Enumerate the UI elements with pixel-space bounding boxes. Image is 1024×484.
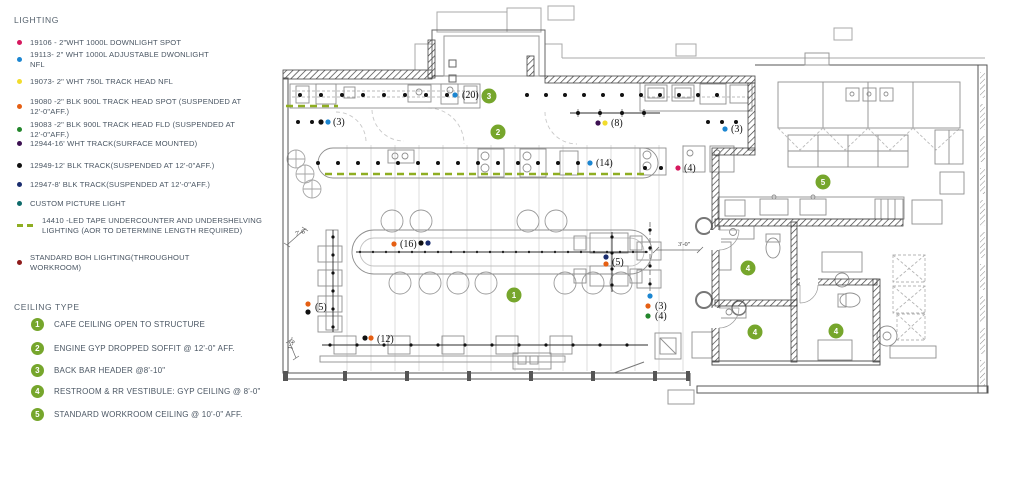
- fixture-callout-dot: [362, 335, 367, 340]
- rr-sink-counter: [720, 226, 754, 239]
- fixture-count-label: (3): [731, 124, 743, 135]
- ceiling-legend-title: CEILING TYPE: [14, 302, 80, 312]
- light-fixture-dot: [541, 251, 543, 253]
- light-fixture-dot: [490, 343, 493, 346]
- ceiling-legend-item: 1CAFE CEILING OPEN TO STRUCTURE: [31, 318, 266, 331]
- fixture-callout-dot: [675, 165, 680, 170]
- restroom-west-wall: [712, 155, 719, 362]
- light-fixture-dot: [403, 93, 407, 97]
- ceiling-legend-label: CAFE CEILING OPEN TO STRUCTURE: [54, 320, 205, 329]
- lighting-legend-label: 19073- 2" WHT 750L TRACK HEAD NFL: [30, 77, 173, 87]
- light-fixture-dot: [544, 93, 548, 97]
- light-dot-marker: [17, 79, 22, 84]
- light-fixture-dot: [720, 120, 724, 124]
- light-fixture-dot: [715, 93, 719, 97]
- lighting-legend-item: 12944-16' WHT TRACK(SURFACE MOUNTED): [17, 139, 265, 149]
- fixture-callout-dot: [305, 301, 310, 306]
- light-fixture-dot: [648, 228, 651, 231]
- light-fixture-dot: [424, 251, 426, 253]
- fixture-count-label: (14): [596, 158, 613, 169]
- desk: [822, 252, 862, 272]
- light-fixture-dot: [632, 251, 634, 253]
- light-fixture-dot: [463, 343, 466, 346]
- light-fixture-dot: [463, 251, 465, 253]
- light-dot-marker: [17, 201, 22, 206]
- light-fixture-dot: [436, 343, 439, 346]
- light-fixture-dot: [563, 93, 567, 97]
- exterior-wall: [283, 70, 432, 79]
- window-wall-segment: [980, 232, 985, 258]
- dashed-reference-arcs: [336, 108, 577, 144]
- fixture-count-label: (8): [611, 118, 623, 129]
- lighting-legend-label: 14410 -LED TAPE UNDERCOUNTER AND UNDERSH…: [42, 216, 262, 235]
- ceiling-tag-number: 4: [753, 328, 758, 337]
- light-fixture-dot: [620, 93, 624, 97]
- lighting-legend-label: 19113- 2" WHT 1000L ADJUSTABLE DWONLIGHT…: [30, 50, 209, 69]
- fixture-callout-dot: [595, 120, 600, 125]
- light-dot-marker: [17, 260, 22, 265]
- lighting-legend-item: CUSTOM PICTURE LIGHT: [17, 199, 265, 209]
- light-fixture-dot: [582, 93, 586, 97]
- light-fixture-dot: [336, 161, 340, 165]
- light-fixture-dot: [502, 251, 504, 253]
- light-fixture-dot: [648, 264, 651, 267]
- window-wall-segment: [980, 296, 985, 322]
- light-fixture-dot: [593, 251, 595, 253]
- fixture-count-label: (3): [333, 117, 345, 128]
- light-fixture-dot: [645, 251, 647, 253]
- fixture-callout-dot: [391, 241, 396, 246]
- left-exterior-wall: [283, 78, 288, 373]
- light-fixture-dot: [610, 235, 613, 238]
- bench-seat: [326, 230, 338, 330]
- window-wall-segment: [980, 72, 985, 98]
- light-fixture-dot: [619, 251, 621, 253]
- round-table: [287, 150, 321, 198]
- lighting-legend-item: 19080 -2" BLK 900L TRACK HEAD SPOT (SUSP…: [17, 97, 265, 116]
- window-wall-segment: [980, 360, 985, 386]
- toilet: [840, 293, 860, 307]
- window-wall-segment: [980, 264, 985, 290]
- ceiling-tag-number: 1: [512, 291, 517, 300]
- lighting-legend-title: LIGHTING: [14, 15, 59, 25]
- fixture-callout-dot: [645, 303, 650, 308]
- light-fixture-dot: [340, 93, 344, 97]
- fixture-count-label: (20): [462, 90, 479, 101]
- light-fixture-dot: [601, 93, 605, 97]
- light-dot-marker: [17, 141, 22, 146]
- ceiling-type-tag: 1: [31, 318, 44, 331]
- workroom-cabinets: [778, 82, 960, 128]
- bottom-exterior-wall: [697, 386, 988, 393]
- light-fixture-dot: [598, 111, 602, 115]
- ceiling-legend-label: RESTROOM & RR VESTIBULE: GYP CEILING @ 8…: [54, 387, 261, 396]
- light-fixture-dot: [319, 93, 323, 97]
- ceiling-tag-number: 5: [821, 178, 826, 187]
- fixture-count-label: (16): [400, 239, 417, 250]
- ceiling-tag-number: 2: [496, 128, 501, 137]
- lighting-legend-label: 12947-8' BLK TRACK(SUSPENDED AT 12'-0"AF…: [30, 180, 210, 190]
- light-fixture-dot: [489, 251, 491, 253]
- dashed-cart: [893, 255, 925, 340]
- light-fixture-dot: [517, 343, 520, 346]
- light-fixture-dot: [571, 343, 574, 346]
- ceiling-type-tag: 2: [31, 342, 44, 355]
- kitchen-counter: [718, 197, 904, 219]
- light-fixture-dot: [409, 343, 412, 346]
- fixture-callout-dot: [368, 335, 373, 340]
- exterior-wall: [545, 76, 755, 83]
- window-wall-segment: [980, 136, 985, 162]
- light-dot-marker: [17, 57, 22, 62]
- ceiling-legend-label: STANDARD WORKROOM CEILING @ 10'-0" AFF.: [54, 410, 243, 419]
- light-fixture-dot: [331, 253, 334, 256]
- light-fixture-dot: [536, 161, 540, 165]
- fixture-callout-dot: [647, 293, 652, 298]
- lighting-legend-label: CUSTOM PICTURE LIGHT: [30, 199, 126, 209]
- lighting-legend-label: 12944-16' WHT TRACK(SURFACE MOUNTED): [30, 139, 197, 149]
- ceiling-legend-item: 4RESTROOM & RR VESTIBULE: GYP CEILING @ …: [31, 385, 266, 398]
- lighting-legend-label: STANDARD BOH LIGHTING(THROUGHOUTWORKROOM…: [30, 253, 190, 272]
- light-fixture-dot: [476, 251, 478, 253]
- light-fixture-dot: [696, 93, 700, 97]
- light-fixture-dot: [372, 251, 374, 253]
- light-fixture-dot: [296, 120, 300, 124]
- lighting-legend-label: 19083 -2" BLK 900L TRACK HEAD FLD (SUSPE…: [30, 120, 235, 139]
- dimension-label: 1'-6": [287, 336, 298, 350]
- light-fixture-dot: [606, 251, 608, 253]
- light-fixture-dot: [328, 343, 331, 346]
- light-fixture-dot: [382, 93, 386, 97]
- window-wall-segment: [980, 328, 985, 354]
- dimension-label: 7'-6": [294, 227, 308, 238]
- light-fixture-dot: [411, 251, 413, 253]
- light-fixture-dot: [610, 283, 613, 286]
- fixture-callout-dot: [645, 313, 650, 318]
- light-fixture-dot: [331, 271, 334, 274]
- light-fixture-dot: [331, 307, 334, 310]
- light-fixture-dot: [385, 251, 387, 253]
- ceiling-type-tag: 4: [31, 385, 44, 398]
- lighting-legend-item: 19083 -2" BLK 900L TRACK HEAD FLD (SUSPE…: [17, 120, 265, 139]
- fixture-callout-dot: [603, 261, 608, 266]
- fixture-count-label: (5): [315, 302, 327, 313]
- lighting-legend-label: 19080 -2" BLK 900L TRACK HEAD SPOT (SUSP…: [30, 97, 241, 116]
- light-dot-marker: [17, 163, 22, 168]
- light-fixture-dot: [658, 93, 662, 97]
- light-fixture-dot: [355, 343, 358, 346]
- boh-counter: [640, 83, 752, 111]
- lighting-legend-item: 12949-12' BLK TRACK(SUSPENDED AT 12'-0"A…: [17, 161, 265, 171]
- light-fixture-dot: [706, 120, 710, 124]
- light-fixture-dot: [356, 161, 360, 165]
- light-fixture-dot: [416, 161, 420, 165]
- light-fixture-dot: [310, 120, 314, 124]
- light-fixture-dot: [648, 246, 651, 249]
- fixture-callout-dot: [452, 92, 457, 97]
- light-fixture-dot: [376, 161, 380, 165]
- light-dot-marker: [17, 182, 22, 187]
- ceiling-legend-item: 2ENGINE GYP DROPPED SOFFIT @ 12'-0" AFF.: [31, 342, 266, 355]
- light-dot-marker: [17, 40, 22, 45]
- fixture-callout-dot: [722, 126, 727, 131]
- light-fixture-dot: [677, 93, 681, 97]
- light-fixture-dot: [331, 289, 334, 292]
- lighting-legend-item: 14410 -LED TAPE UNDERCOUNTER AND UNDERSH…: [17, 216, 265, 235]
- lighting-legend-item: 19113- 2" WHT 1000L ADJUSTABLE DWONLIGHT…: [17, 50, 265, 69]
- light-fixture-dot: [556, 161, 560, 165]
- light-fixture-dot: [424, 93, 428, 97]
- lighting-legend-item: 19073- 2" WHT 750L TRACK HEAD NFL: [17, 77, 265, 87]
- light-fixture-dot: [625, 343, 628, 346]
- lighting-legend-label: 19106 - 2"WHT 1000L DOWNLIGHT SPOT: [30, 38, 181, 48]
- fixture-callout-dot: [603, 254, 608, 259]
- lighting-legend-label: 12949-12' BLK TRACK(SUSPENDED AT 12'-0"A…: [30, 161, 214, 171]
- fixture-callout-dot: [602, 120, 607, 125]
- ceiling-legend-item: 3BACK BAR HEADER @8'-10": [31, 364, 266, 377]
- light-fixture-dot: [359, 251, 361, 253]
- ceiling-tag-number: 3: [487, 92, 492, 101]
- light-fixture-dot: [331, 235, 334, 238]
- light-dot-marker: [17, 127, 22, 132]
- ceiling-tag-number: 4: [746, 264, 751, 273]
- lighting-legend-item: 12947-8' BLK TRACK(SUSPENDED AT 12'-0"AF…: [17, 180, 265, 190]
- fixture-callout-dot: [425, 240, 430, 245]
- light-fixture-dot: [598, 343, 601, 346]
- ceiling-legend-label: ENGINE GYP DROPPED SOFFIT @ 12'-0" AFF.: [54, 344, 235, 353]
- light-fixture-dot: [525, 93, 529, 97]
- light-fixture-dot: [445, 93, 449, 97]
- light-fixture-dot: [398, 251, 400, 253]
- led-tape-marker: [17, 224, 34, 227]
- ceiling-legend-label: BACK BAR HEADER @8'-10": [54, 366, 165, 375]
- light-fixture-dot: [316, 161, 320, 165]
- light-fixture-dot: [476, 161, 480, 165]
- light-fixture-dot: [361, 93, 365, 97]
- fixture-callout-dot: [318, 119, 323, 124]
- light-fixture-dot: [580, 251, 582, 253]
- ceiling-legend-item: 5STANDARD WORKROOM CEILING @ 10'-0" AFF.: [31, 408, 266, 421]
- light-fixture-dot: [331, 325, 334, 328]
- ceiling-type-tag: 5: [31, 408, 44, 421]
- light-fixture-dot: [516, 161, 520, 165]
- cafe-floor-planks: [347, 145, 683, 371]
- light-fixture-dot: [576, 111, 580, 115]
- fixture-callout-dot: [587, 160, 592, 165]
- fixture-count-label: (4): [655, 311, 667, 322]
- light-fixture-dot: [567, 251, 569, 253]
- fixture-callout-dot: [305, 309, 310, 314]
- light-fixture-dot: [639, 93, 643, 97]
- light-fixture-dot: [643, 166, 647, 170]
- light-fixture-dot: [515, 251, 517, 253]
- light-fixture-dot: [659, 166, 663, 170]
- window-wall-segment: [980, 104, 985, 130]
- fixture-callout-dot: [325, 119, 330, 124]
- light-fixture-dot: [554, 251, 556, 253]
- ceiling-type-tag: 3: [31, 364, 44, 377]
- entry-door-leaf: [614, 362, 644, 373]
- window-wall-segment: [980, 168, 985, 194]
- fixture-count-label: (12): [377, 334, 394, 345]
- lighting-legend-item: 19106 - 2"WHT 1000L DOWNLIGHT SPOT: [17, 38, 265, 48]
- light-fixture-dot: [496, 161, 500, 165]
- dimension-label: 3'-0": [678, 241, 691, 248]
- light-fixture-dot: [528, 251, 530, 253]
- lighting-legend-item: STANDARD BOH LIGHTING(THROUGHOUTWORKROOM…: [17, 253, 265, 272]
- light-fixture-dot: [436, 161, 440, 165]
- light-fixture-dot: [642, 111, 646, 115]
- light-fixture-dot: [437, 251, 439, 253]
- light-fixture-dot: [610, 251, 613, 254]
- fixture-callout-dot: [418, 240, 423, 245]
- fixture-count-label: (5): [612, 257, 624, 268]
- fixture-count-label: (4): [684, 163, 696, 174]
- light-fixture-dot: [298, 93, 302, 97]
- light-fixture-dot: [456, 161, 460, 165]
- light-fixture-dot: [648, 282, 651, 285]
- light-fixture-dot: [620, 111, 624, 115]
- ceiling-tag-number: 4: [834, 327, 839, 336]
- light-fixture-dot: [544, 343, 547, 346]
- light-dot-marker: [17, 104, 22, 109]
- legend-panel: LIGHTING 19106 - 2"WHT 1000L DOWNLIGHT S…: [0, 0, 272, 484]
- light-fixture-dot: [450, 251, 452, 253]
- toilet: [766, 238, 780, 258]
- window-wall-segment: [980, 200, 985, 226]
- light-fixture-dot: [576, 161, 580, 165]
- light-fixture-dot: [396, 161, 400, 165]
